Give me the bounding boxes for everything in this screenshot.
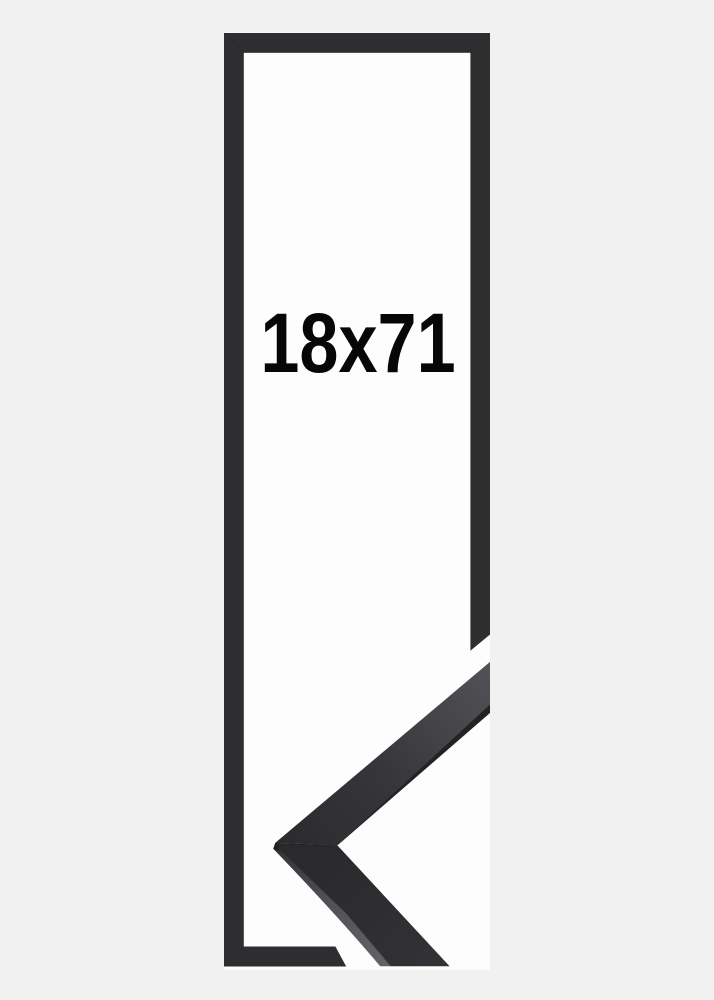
svg-text:18x71: 18x71	[260, 297, 455, 390]
